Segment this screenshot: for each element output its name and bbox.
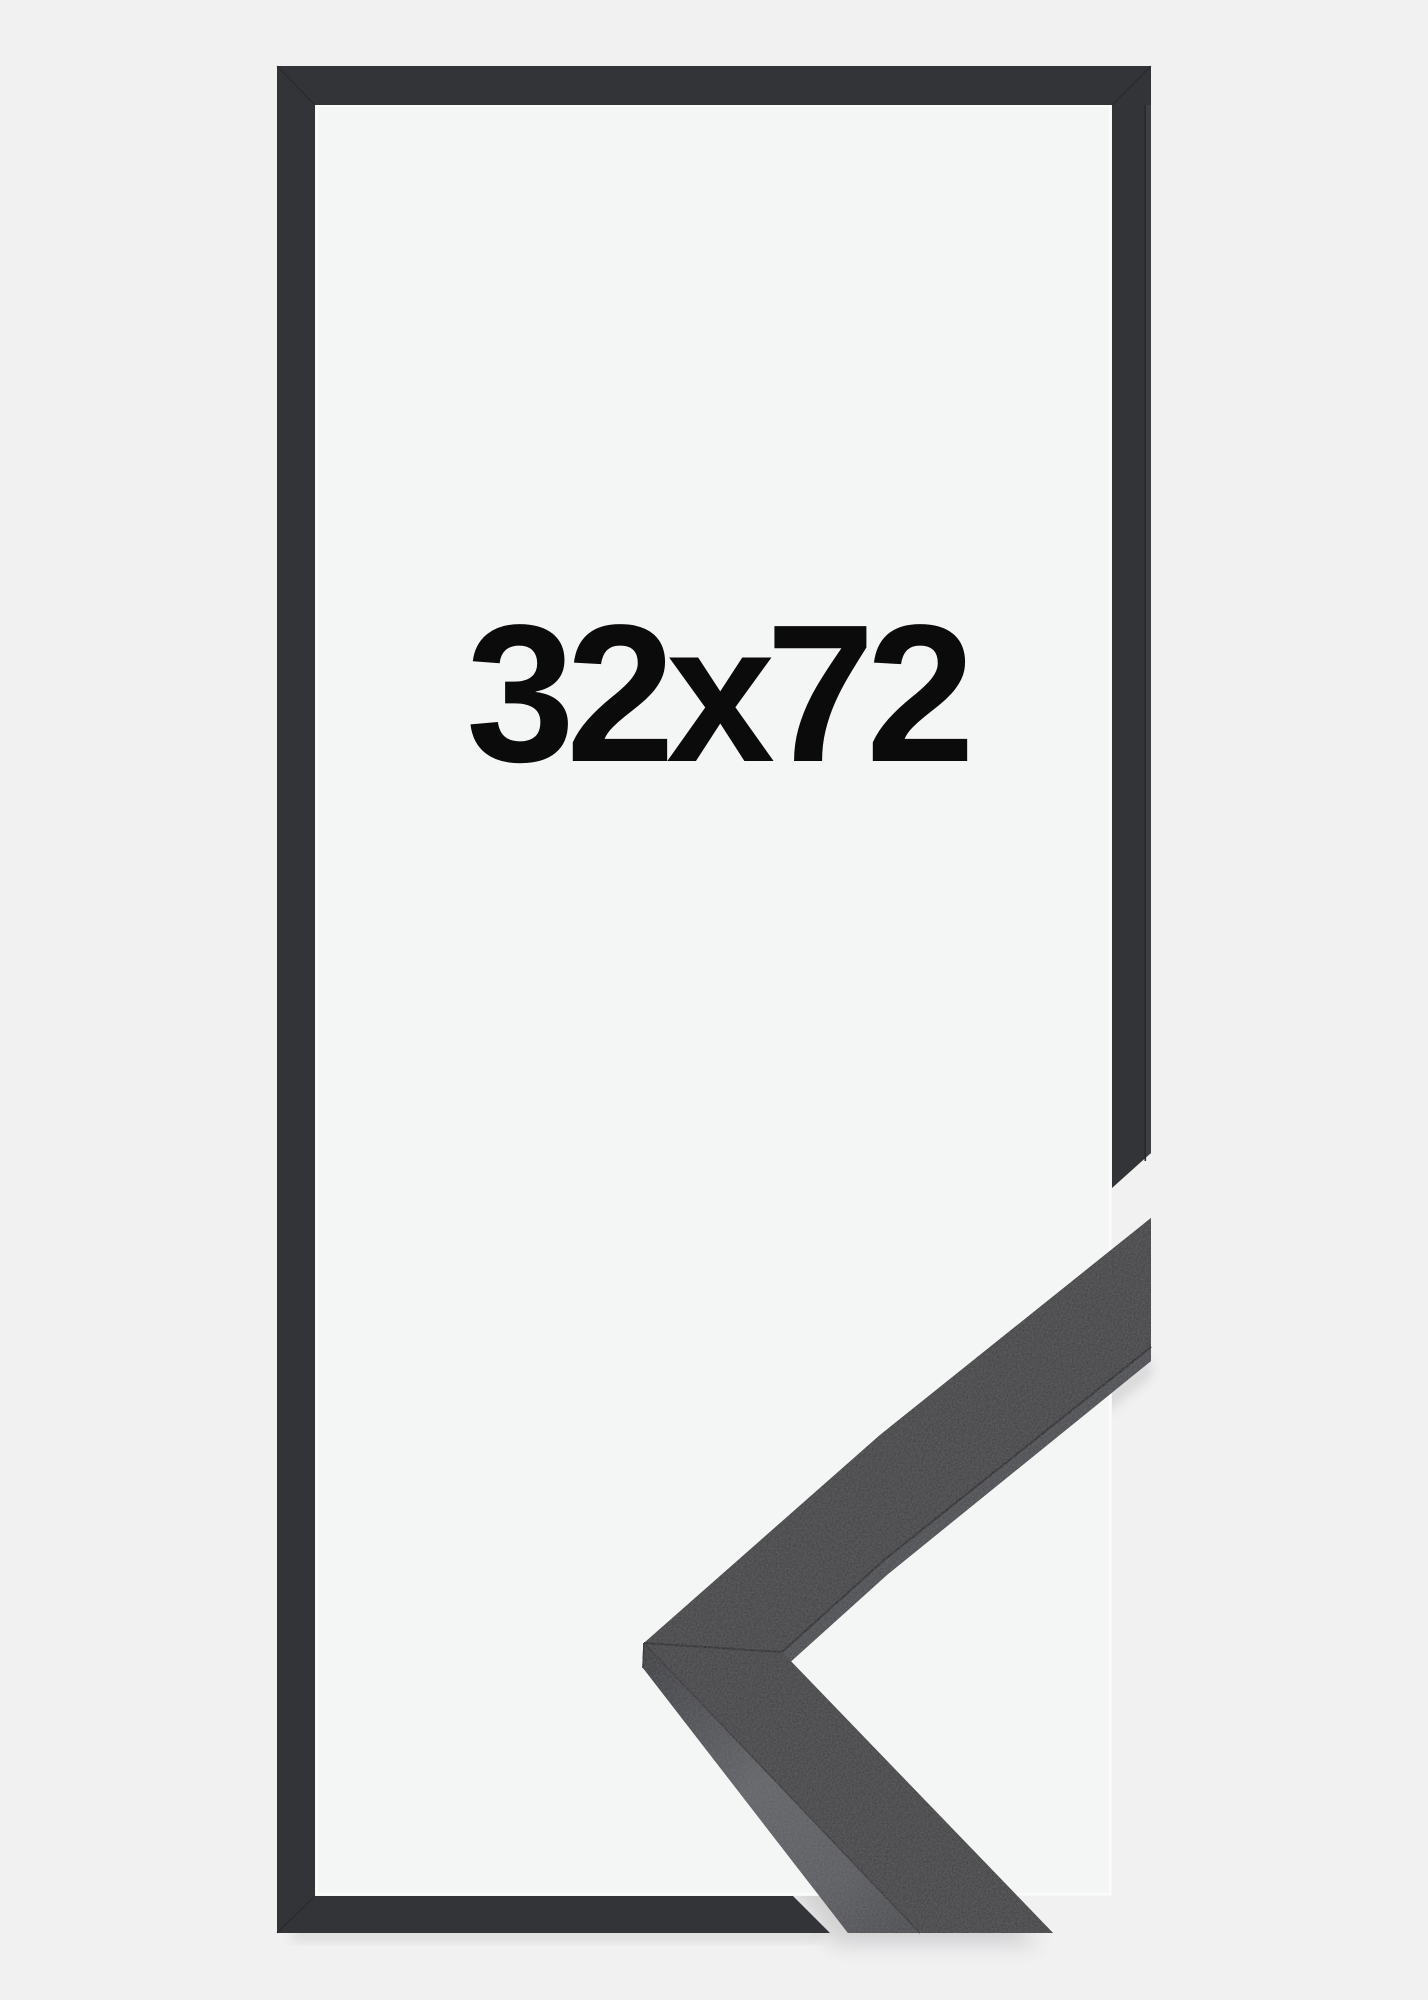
- frame-right-border-outer-facet: [1146, 105, 1151, 1157]
- frame-top-border: [277, 66, 1151, 105]
- frame-right-border-seam: [1145, 105, 1147, 1161]
- product-image[interactable]: 32x72: [0, 0, 1428, 2000]
- corner-sample-vertex-facet: [643, 1643, 644, 1668]
- size-label: 32x72: [466, 584, 968, 803]
- frame-left-border: [277, 105, 315, 1933]
- frame-bottom-border: [277, 1896, 830, 1933]
